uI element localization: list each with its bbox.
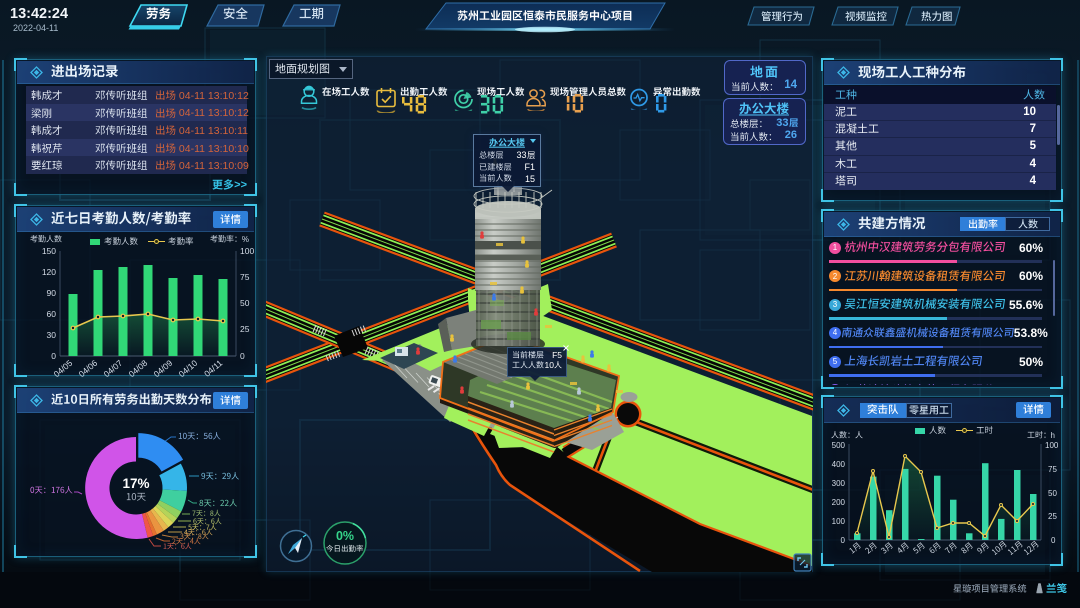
- svg-text:50: 50: [1048, 489, 1057, 498]
- svg-text:0: 0: [240, 351, 245, 361]
- svg-text:75: 75: [240, 272, 250, 282]
- svg-text:100: 100: [832, 517, 846, 526]
- svg-text:500: 500: [832, 441, 846, 450]
- svg-text:100: 100: [240, 246, 254, 256]
- svg-text:90: 90: [47, 288, 57, 298]
- svg-text:30: 30: [47, 330, 57, 340]
- svg-text:100: 100: [1045, 441, 1059, 450]
- svg-text:04/06: 04/06: [77, 358, 100, 377]
- svg-text:400: 400: [832, 460, 846, 469]
- svg-text:200: 200: [832, 498, 846, 507]
- svg-text:04/10: 04/10: [177, 358, 200, 377]
- svg-text:120: 120: [42, 267, 56, 277]
- svg-text:150: 150: [42, 246, 56, 256]
- svg-text:60: 60: [47, 309, 57, 319]
- svg-text:300: 300: [832, 479, 846, 488]
- svg-text:50: 50: [240, 298, 250, 308]
- svg-text:75: 75: [1048, 465, 1057, 474]
- svg-text:25: 25: [1048, 512, 1057, 521]
- svg-text:04/11: 04/11: [202, 358, 224, 377]
- svg-text:04/08: 04/08: [127, 358, 150, 377]
- svg-text:25: 25: [240, 324, 250, 334]
- svg-text:04/09: 04/09: [152, 358, 175, 377]
- svg-text:0: 0: [51, 351, 56, 361]
- svg-text:04/07: 04/07: [102, 358, 125, 377]
